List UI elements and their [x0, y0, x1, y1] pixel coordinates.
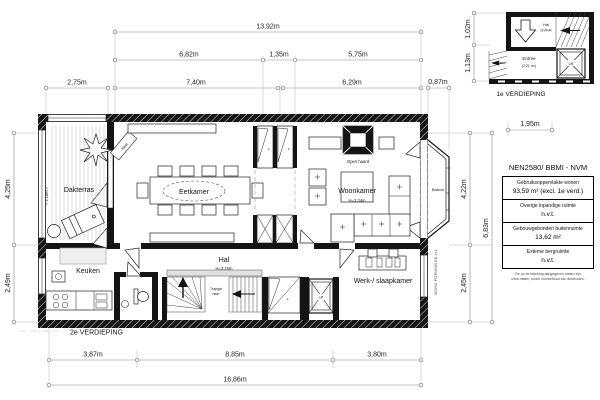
- hall-closet: [268, 277, 300, 313]
- room-label-eetkamer: Eetkamer: [179, 189, 210, 196]
- legend-title: NEN2580/ BBMI - NVM: [502, 163, 594, 172]
- dim-top-682: 6,82m: [179, 52, 199, 59]
- hal-height-label: H=3,10m: [215, 266, 233, 271]
- legend-footnote: De op de tekening aangegeven maten zijn …: [502, 272, 594, 281]
- legend-value: 93,59 m² (excl. 1e verd.): [504, 188, 592, 195]
- dim-right-245: 2,45m: [461, 273, 468, 293]
- dim-bottom-total: 16,86m: [223, 377, 247, 384]
- inset-dim-113: 1,13m: [465, 53, 472, 73]
- dim-top-740: 7,40m: [186, 80, 206, 87]
- dim-bottom-380: 3,80m: [367, 352, 387, 359]
- room-label-werkkamer: Werk-/ slaapkamer: [354, 278, 413, 285]
- inset-entree-area: (2,21 m²): [522, 64, 536, 68]
- side-table-icon: [48, 225, 61, 238]
- trapgat-label-1: Trapgat: [210, 287, 222, 291]
- dim-bottom-387: 3,87m: [83, 352, 103, 359]
- trapgat-label-2: naar: [212, 292, 220, 296]
- dim-right-422: 4,22m: [461, 179, 468, 199]
- lift-label: Lift: [319, 296, 324, 300]
- balkon-label: Balkon: [432, 187, 444, 192]
- inset-dim-195: 1,95m: [520, 121, 540, 128]
- floor-title: 2e VERDIEPING: [70, 330, 123, 337]
- floorplan-page: 13,92m 6,82m 1,35m 5,75m 2,75m 7,40m 6,2…: [0, 0, 600, 400]
- legend-row-buitenruimte: Gebouwgebonden buitenruimte 13,62 m²: [503, 223, 593, 246]
- closet-k-label-1: k.: [268, 147, 271, 151]
- legend-value: n.v.t.: [504, 257, 592, 264]
- legend-label: Gebruiksoppervlakte wonen: [504, 180, 592, 186]
- inset-lift-label: Lift: [569, 62, 574, 66]
- legend-value: 13,62 m²: [504, 234, 592, 241]
- legend-row-bergruimte: Externe bergruimte n.v.t.: [503, 246, 593, 268]
- dim-top-total: 13,92m: [256, 24, 280, 31]
- dim-bottom-885: 8,85m: [225, 352, 245, 359]
- dim-top-135: 1,35m: [269, 52, 289, 59]
- legend-row-inpandig: Overige inpandige ruimte n.v.t.: [503, 200, 593, 223]
- desk-chair-1: [368, 249, 377, 257]
- legend-label: Externe bergruimte: [504, 249, 592, 255]
- inset-floor-title: 1e VERDIEPING: [496, 91, 545, 98]
- inset-entree-label: Entree: [522, 56, 536, 61]
- washbasin: [122, 301, 129, 308]
- dakterras-width-label: < 4,18m >: [44, 186, 49, 205]
- room-label-keuken: Keuken: [76, 268, 100, 275]
- dim-top-629: 6,29m: [342, 80, 362, 87]
- bench-bottom: [150, 233, 234, 242]
- radiator-top: [128, 124, 216, 133]
- inset-dim-102: 1,02m: [465, 19, 472, 39]
- legend-label: Overige inpandige ruimte: [504, 203, 592, 209]
- closet-k-label-2: k.: [288, 147, 291, 151]
- dim-right-total: 6,83m: [483, 218, 490, 238]
- area-legend: NEN2580/ BBMI - NVM Gebruiksoppervlakte …: [502, 163, 594, 281]
- inset-hal-label-1: Hal: [543, 22, 549, 27]
- legend-label: Gebouwgebonden buitenruimte: [504, 226, 592, 232]
- open-haard-label: Open haard: [347, 159, 370, 164]
- dim-left-249: 2,49m: [5, 273, 12, 293]
- room-label-dakterras: Dakterras: [64, 187, 95, 194]
- sink-bowl-2: [96, 302, 107, 308]
- room-label-woonkamer: Woonkamer: [338, 188, 376, 195]
- kitchen-island: [60, 248, 106, 264]
- watermark-text: WWW.FORMWISE.NL: [433, 248, 438, 295]
- wc-bowl: [138, 292, 149, 302]
- dakterras-glazing: [108, 150, 113, 208]
- sink-bowl-1: [96, 294, 107, 300]
- legend-table: Gebruiksoppervlakte wonen 93,59 m² (excl…: [502, 176, 594, 269]
- dim-top-575: 5,75m: [348, 52, 368, 59]
- closet-k-label-3: k.: [287, 297, 290, 301]
- dim-top-275: 2,75m: [67, 80, 87, 87]
- inset-hal-label-2: GVKR: [540, 28, 551, 33]
- sofa-horizontal: [354, 214, 410, 236]
- legend-footnote-line2: circa maten, onder voorbehoud van drukfo…: [502, 277, 594, 282]
- dim-top-087: 0,87m: [428, 79, 448, 86]
- woonkamer-height-label: H=3,34m: [348, 198, 366, 203]
- room-label-hal: Hal: [219, 257, 230, 264]
- legend-row-wonen: Gebruiksoppervlakte wonen 93,59 m² (excl…: [503, 177, 593, 200]
- legend-value: n.v.t.: [504, 211, 592, 218]
- plant-icon: [80, 134, 112, 166]
- dim-left-425: 4,25m: [5, 179, 12, 199]
- desk-chair-2: [389, 249, 398, 257]
